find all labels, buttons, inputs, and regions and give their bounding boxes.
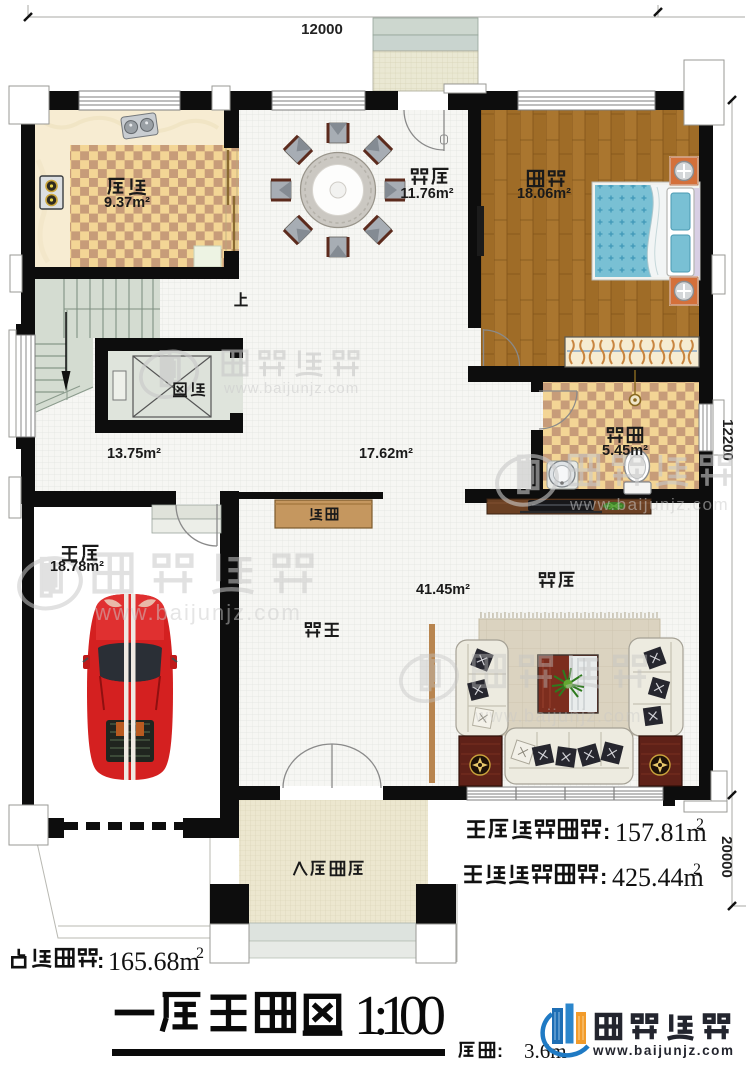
svg-text:www.baijunjz.com: www.baijunjz.com [474, 706, 642, 726]
svg-text:11.76m²: 11.76m² [400, 186, 453, 202]
svg-text:2: 2 [196, 945, 204, 962]
svg-text:12000: 12000 [301, 21, 343, 38]
svg-text:5.45m²: 5.45m² [602, 443, 648, 459]
svg-text:17.62m²: 17.62m² [359, 446, 413, 462]
svg-text:18.06m²: 18.06m² [517, 186, 571, 202]
svg-text:13.75m²: 13.75m² [107, 446, 161, 462]
svg-text::: : [603, 819, 610, 844]
svg-text:9.37m²: 9.37m² [104, 195, 150, 211]
svg-text:425.44m: 425.44m [612, 863, 704, 892]
svg-text:1:100: 1:100 [354, 985, 446, 1047]
svg-text:18.78m²: 18.78m² [50, 559, 104, 575]
svg-text:20000: 20000 [718, 836, 735, 878]
svg-text:157.81m: 157.81m [615, 818, 707, 847]
svg-text:2: 2 [696, 816, 704, 833]
svg-text::: : [497, 1041, 503, 1061]
svg-text:www.baijunjz.com: www.baijunjz.com [94, 600, 302, 625]
svg-text::: : [600, 864, 607, 889]
svg-text:2: 2 [693, 861, 701, 878]
svg-text::: : [97, 948, 104, 973]
svg-text:41.45m²: 41.45m² [416, 582, 470, 598]
svg-text:www.baijunjz.com: www.baijunjz.com [569, 495, 729, 514]
svg-text:165.68m: 165.68m [108, 947, 200, 976]
svg-text:www.baijunjz.com: www.baijunjz.com [223, 380, 359, 397]
